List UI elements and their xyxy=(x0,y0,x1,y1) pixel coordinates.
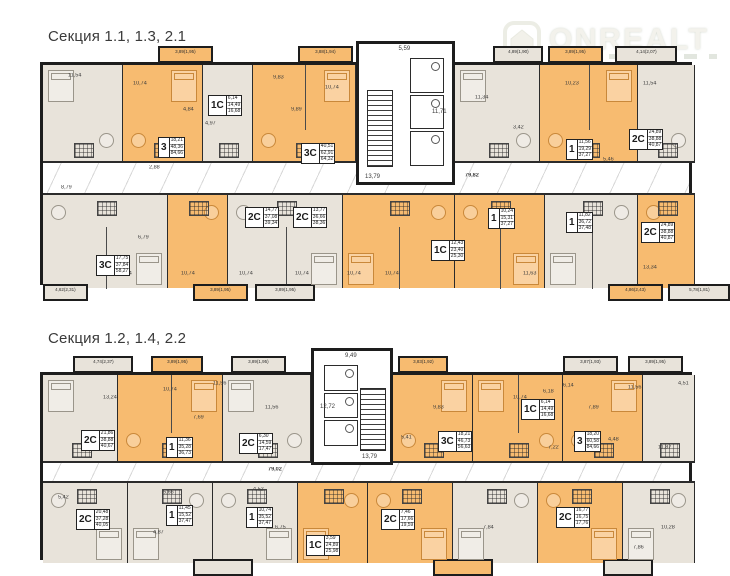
unit-areas: 24,8938,8840,87 xyxy=(659,223,675,242)
dimension-label: 5,46 xyxy=(603,157,614,163)
balcony: 3,89(1,95) xyxy=(548,46,603,63)
bed-icon xyxy=(478,380,504,412)
unit-rooms-count: 2С xyxy=(630,130,647,149)
bed-icon xyxy=(513,253,539,285)
apartment-unit[interactable] xyxy=(545,193,638,288)
unit-type-label[interactable]: 3С17,7537,8458,27 xyxy=(96,255,130,276)
core-dimension-label: 11,71 xyxy=(432,109,447,115)
unit-rooms-count: 1 xyxy=(167,506,177,525)
stair-elevator-core: 5,5913,7911,71 xyxy=(356,41,455,185)
dimension-label: 10,74 xyxy=(325,85,339,91)
room-partition-wall xyxy=(399,227,400,290)
dimension-label: 10,28 xyxy=(661,525,675,531)
balcony-area-label: 3,89(1,95) xyxy=(565,49,586,54)
unit-areas: 11,4515,5237,47 xyxy=(177,506,193,525)
balcony: 3,89(1,95) xyxy=(255,284,315,301)
balcony: 4,14(2,07) xyxy=(615,46,677,63)
apartment-unit[interactable] xyxy=(43,65,123,163)
table-icon xyxy=(261,133,276,148)
table-icon xyxy=(126,433,141,448)
table-icon xyxy=(131,133,146,148)
unit-rooms-count: 2С xyxy=(246,208,263,227)
balcony: 3,89(1,95) xyxy=(193,284,248,301)
unit-type-label[interactable]: 2С6,3014,5917,47 xyxy=(239,433,273,454)
bathroom-tiles xyxy=(189,201,209,216)
apartment-unit[interactable] xyxy=(453,481,538,563)
unit-rooms-count: 2С xyxy=(294,208,311,227)
dimension-label: 11,63 xyxy=(523,271,536,277)
core-dimension-label: 13,79 xyxy=(365,174,380,180)
balcony xyxy=(433,559,493,576)
floor-plan-section-2: 9,4913,7912,7279,022С21,8638,8840,67111,… xyxy=(40,372,692,560)
stair-elevator-core: 9,4913,7912,72 xyxy=(311,348,393,465)
balcony-area-label: 3,83(1,92) xyxy=(413,359,434,364)
unit-type-label[interactable]: 318,2060,5884,66 xyxy=(574,431,601,452)
unit-type-label[interactable]: 111,8236,7237,48 xyxy=(566,212,593,233)
bathroom-tiles xyxy=(74,143,94,158)
unit-areas: 24,8938,8840,87 xyxy=(647,130,663,149)
room-partition-wall xyxy=(589,65,590,130)
bathroom-tiles xyxy=(219,143,239,158)
bed-icon xyxy=(628,528,654,560)
unit-areas: 3,5924,8925,98 xyxy=(324,536,340,555)
unit-rooms-count: 1 xyxy=(567,140,577,159)
dimension-label: 7,69 xyxy=(193,415,204,421)
table-icon xyxy=(376,493,391,508)
dimension-label: 4,48 xyxy=(608,437,619,443)
bed-icon xyxy=(171,70,197,102)
bed-icon xyxy=(606,70,632,102)
unit-rooms-count: 3С xyxy=(302,144,319,163)
balcony: 5,78(1,81) xyxy=(668,284,730,301)
bed-icon xyxy=(348,253,374,285)
floor-plan-section-1: 5,5913,7911,7179,82318,2148,3684,661С6,1… xyxy=(40,62,692,285)
dimension-label: 9,89 xyxy=(291,107,302,113)
unit-rooms-count: 2С xyxy=(82,431,99,450)
unit-type-label[interactable]: 1С6,1414,4916,68 xyxy=(208,95,242,116)
table-icon xyxy=(51,205,66,220)
unit-areas: 16,7716,7517,76 xyxy=(574,508,590,527)
dimension-label: 11,34 xyxy=(475,95,488,101)
table-icon xyxy=(431,205,446,220)
unit-areas: 40,5162,9164,32 xyxy=(319,144,335,163)
balcony: 4,74(2,37) xyxy=(73,356,133,373)
table-icon xyxy=(548,133,563,148)
unit-areas: 18,2060,5884,66 xyxy=(585,432,601,451)
core-dimension-label: 13,79 xyxy=(362,454,377,460)
unit-rooms-count: 1 xyxy=(567,213,577,232)
dimension-label: 10,74 xyxy=(163,387,177,393)
balcony-area-label: 4,74(2,37) xyxy=(93,359,114,364)
balcony-area-label: 4,86(2,43) xyxy=(625,287,646,292)
balcony xyxy=(193,559,253,576)
bed-icon xyxy=(266,528,292,560)
balcony: 3,88(1,94) xyxy=(298,46,353,63)
bed-icon xyxy=(591,528,617,560)
dimension-label: 6,79 xyxy=(138,235,149,241)
unit-rooms-count: 1С xyxy=(307,536,324,555)
bed-icon xyxy=(421,528,447,560)
unit-rooms-count: 3 xyxy=(575,432,585,451)
dimension-label: 5,41 xyxy=(401,435,412,441)
balcony: 4,89(1,90) xyxy=(493,46,543,63)
balcony-area-label: 3,89(1,95) xyxy=(167,359,188,364)
unit-rooms-count: 1С xyxy=(522,400,539,419)
bed-icon xyxy=(96,528,122,560)
room-partition-wall xyxy=(305,65,306,130)
balcony-area-label: 3,89(1,95) xyxy=(210,287,231,292)
unit-rooms-count: 2С xyxy=(240,434,257,453)
unit-areas: 18,2146,7356,63 xyxy=(456,432,472,451)
balcony xyxy=(603,559,653,576)
dimension-label: 10,74 xyxy=(133,81,147,87)
unit-rooms-count: 1 xyxy=(489,209,499,228)
elevator-icon xyxy=(410,58,444,93)
unit-type-label[interactable]: 2С24,8938,8840,87 xyxy=(629,129,663,150)
unit-type-label[interactable]: 2С16,7716,7517,76 xyxy=(556,507,590,528)
unit-areas: 20,4837,2840,05 xyxy=(94,510,110,529)
unit-type-label[interactable]: 1С6,1414,4916,68 xyxy=(521,399,555,420)
unit-rooms-count: 2С xyxy=(557,508,574,527)
unit-type-label[interactable]: 1С3,5924,8925,98 xyxy=(306,535,340,556)
balcony: 3,87(1,93) xyxy=(563,356,618,373)
room-partition-wall xyxy=(286,227,287,290)
dimension-label: 11,56 xyxy=(628,385,641,391)
elevator-icon xyxy=(324,420,358,446)
bathroom-tiles xyxy=(97,201,117,216)
unit-rooms-count: 3С xyxy=(97,256,114,275)
unit-rooms-count: 1С xyxy=(209,96,226,115)
dimension-label: 2,88 xyxy=(149,165,160,171)
corridor-area-label: 79,02 xyxy=(268,467,282,473)
unit-areas: 11,3635,2836,73 xyxy=(177,438,193,457)
dimension-label: 11,54 xyxy=(68,73,81,79)
table-icon xyxy=(546,493,561,508)
unit-type-label[interactable]: 3С18,2146,7356,63 xyxy=(438,431,472,452)
dimension-label: 4,87 xyxy=(153,530,164,536)
unit-type-label[interactable]: 318,2148,3684,66 xyxy=(158,137,185,158)
unit-rooms-count: 1С xyxy=(432,241,449,260)
dimension-label: 4,52 xyxy=(253,487,264,493)
balcony-area-label: 3,89(1,95) xyxy=(248,359,269,364)
balcony-area-label: 3,87(1,93) xyxy=(580,359,601,364)
unit-rooms-count: 1 xyxy=(247,508,257,527)
elevator-icon xyxy=(410,131,444,166)
dimension-label: 10,74 xyxy=(295,271,309,277)
room-partition-wall xyxy=(500,227,501,290)
balcony-area-label: 4,89(1,90) xyxy=(508,49,529,54)
dimension-label: 10,74 xyxy=(181,271,195,277)
unit-areas: 6,1414,4916,68 xyxy=(226,96,242,115)
unit-rooms-count: 3 xyxy=(159,138,169,157)
dimension-label: 8,79 xyxy=(61,185,72,191)
bathroom-tiles xyxy=(658,201,678,216)
balcony: 3,89(1,95) xyxy=(231,356,286,373)
balcony-area-label: 4,62(2,31) xyxy=(55,287,76,292)
core-dimension-label: 9,49 xyxy=(345,353,357,359)
core-dimension-label: 12,72 xyxy=(320,404,335,410)
dimension-label: 11,56 xyxy=(213,381,226,387)
balcony: 4,86(2,43) xyxy=(608,284,663,301)
bathroom-tiles xyxy=(509,443,529,458)
bed-icon xyxy=(48,380,74,412)
balcony-area-label: 3,88(1,94) xyxy=(315,49,336,54)
unit-type-label[interactable]: 2С24,8938,8840,87 xyxy=(641,222,675,243)
table-icon xyxy=(614,205,629,220)
unit-type-label[interactable]: 2С20,4837,2840,05 xyxy=(76,509,110,530)
unit-type-label[interactable]: 3С40,5162,9164,32 xyxy=(301,143,335,164)
dimension-label: 11,87 xyxy=(658,445,671,451)
bed-icon xyxy=(311,253,337,285)
balcony: 3,83(1,92) xyxy=(398,356,448,373)
apartment-unit[interactable] xyxy=(168,193,228,288)
dimension-label: 10,23 xyxy=(565,81,579,87)
unit-areas: 11,5619,2937,27 xyxy=(577,140,593,159)
unit-areas: 10,2415,3137,27 xyxy=(499,209,515,228)
bed-icon xyxy=(441,380,467,412)
unit-type-label[interactable]: 2С13,7736,6638,36 xyxy=(293,207,327,228)
dimension-label: 5,66 xyxy=(163,490,174,496)
bathroom-tiles xyxy=(572,489,592,504)
unit-type-label[interactable]: 110,2415,3137,27 xyxy=(488,208,515,229)
bed-icon xyxy=(458,528,484,560)
unit-rooms-count: 2С xyxy=(642,223,659,242)
section-title-2: Секция 1.2, 1.4, 2.2 xyxy=(48,330,186,347)
table-icon xyxy=(463,205,478,220)
dimension-label: 9,83 xyxy=(273,75,284,81)
dimension-label: 5,42 xyxy=(58,495,69,501)
bed-icon xyxy=(136,253,162,285)
dimension-label: 7,22 xyxy=(548,445,559,451)
unit-type-label[interactable]: 2С7,4617,6619,59 xyxy=(381,509,415,530)
elevator-icon xyxy=(324,365,358,391)
unit-areas: 12,4323,4025,30 xyxy=(449,241,465,260)
unit-areas: 18,2148,3684,66 xyxy=(169,138,185,157)
bathroom-tiles xyxy=(489,143,509,158)
dimension-label: 4,84 xyxy=(183,107,194,113)
dimension-label: 3,42 xyxy=(513,125,524,131)
stairs-icon xyxy=(367,90,393,167)
unit-areas: 7,4617,6619,59 xyxy=(399,510,415,529)
unit-areas: 10,7435,5237,47 xyxy=(257,508,273,527)
bathroom-tiles xyxy=(650,489,670,504)
dimension-label: 10,74 xyxy=(239,271,253,277)
unit-rooms-count: 2С xyxy=(77,510,94,529)
dimension-label: 6,14 xyxy=(563,383,574,389)
dimension-label: 10,74 xyxy=(385,271,399,277)
table-icon xyxy=(516,133,531,148)
dimension-label: 10,74 xyxy=(347,271,361,277)
dimension-label: 13,24 xyxy=(103,395,117,401)
unit-areas: 17,7537,8458,27 xyxy=(114,256,130,275)
bathroom-tiles xyxy=(77,489,97,504)
dimension-label: 6,18 xyxy=(543,389,554,395)
dimension-label: 9,83 xyxy=(433,405,444,411)
balcony: 3,89(1,95) xyxy=(628,356,683,373)
dimension-label: 11,54 xyxy=(643,81,656,87)
balcony: 4,62(2,31) xyxy=(43,284,88,301)
unit-rooms-count: 2С xyxy=(382,510,399,529)
unit-type-label[interactable]: 2С21,8638,8840,67 xyxy=(81,430,115,451)
balcony: 3,89(1,95) xyxy=(151,356,203,373)
table-icon xyxy=(671,493,686,508)
stairs-icon xyxy=(360,388,386,451)
unit-areas: 6,3014,5917,47 xyxy=(257,434,273,453)
balcony-area-label: 3,89(1,95) xyxy=(275,287,296,292)
balcony-area-label: 5,78(1,81) xyxy=(689,287,710,292)
corridor-area-label: 79,82 xyxy=(465,173,479,179)
unit-areas: 14,7737,0839,34 xyxy=(263,208,279,227)
unit-type-label[interactable]: 111,4515,5237,47 xyxy=(166,505,193,526)
unit-areas: 21,8638,8840,67 xyxy=(99,431,115,450)
bed-icon xyxy=(228,380,254,412)
dimension-label: 11,56 xyxy=(265,405,278,411)
core-dimension-label: 5,59 xyxy=(399,46,411,52)
balcony-area-label: 3,89(1,95) xyxy=(645,359,666,364)
table-icon xyxy=(514,493,529,508)
dimension-label: 13,34 xyxy=(643,265,657,271)
unit-type-label[interactable]: 111,5619,2937,27 xyxy=(566,139,593,160)
dimension-label: 7,89 xyxy=(588,405,599,411)
room-partition-wall xyxy=(171,375,172,433)
table-icon xyxy=(221,493,236,508)
dimension-label: 7,86 xyxy=(633,545,644,551)
dimension-label: 4,51 xyxy=(678,381,689,387)
unit-type-label[interactable]: 110,7435,5237,47 xyxy=(246,507,273,528)
section-title-1: Секция 1.1, 1.3, 2.1 xyxy=(48,28,186,45)
unit-rooms-count: 1 xyxy=(167,438,177,457)
dimension-label: 7,84 xyxy=(483,525,494,531)
table-icon xyxy=(344,493,359,508)
table-icon xyxy=(99,133,114,148)
bathroom-tiles xyxy=(402,489,422,504)
balcony: 3,89(1,95) xyxy=(158,46,213,63)
bed-icon xyxy=(550,253,576,285)
balcony-area-label: 4,14(2,07) xyxy=(636,49,657,54)
bathroom-tiles xyxy=(487,489,507,504)
unit-type-label[interactable]: 2С14,7737,0839,34 xyxy=(245,207,279,228)
unit-type-label[interactable]: 1С12,4323,4025,30 xyxy=(431,240,465,261)
dimension-label: 6,75 xyxy=(275,525,286,531)
room-partition-wall xyxy=(518,375,519,433)
balcony-area-label: 3,89(1,95) xyxy=(175,49,196,54)
unit-areas: 6,1414,4916,68 xyxy=(539,400,555,419)
room-partition-wall xyxy=(592,227,593,290)
unit-areas: 11,8236,7237,48 xyxy=(577,213,593,232)
apartment-unit[interactable] xyxy=(623,481,695,563)
bathroom-tiles xyxy=(324,489,344,504)
apartment-unit[interactable] xyxy=(455,65,540,163)
bathroom-tiles xyxy=(390,201,410,216)
unit-areas: 13,7736,6638,36 xyxy=(311,208,327,227)
unit-type-label[interactable]: 111,3635,2836,73 xyxy=(166,437,193,458)
dimension-label: 4,97 xyxy=(205,121,216,127)
unit-rooms-count: 3С xyxy=(439,432,456,451)
corridor xyxy=(43,463,689,481)
table-icon xyxy=(287,433,302,448)
